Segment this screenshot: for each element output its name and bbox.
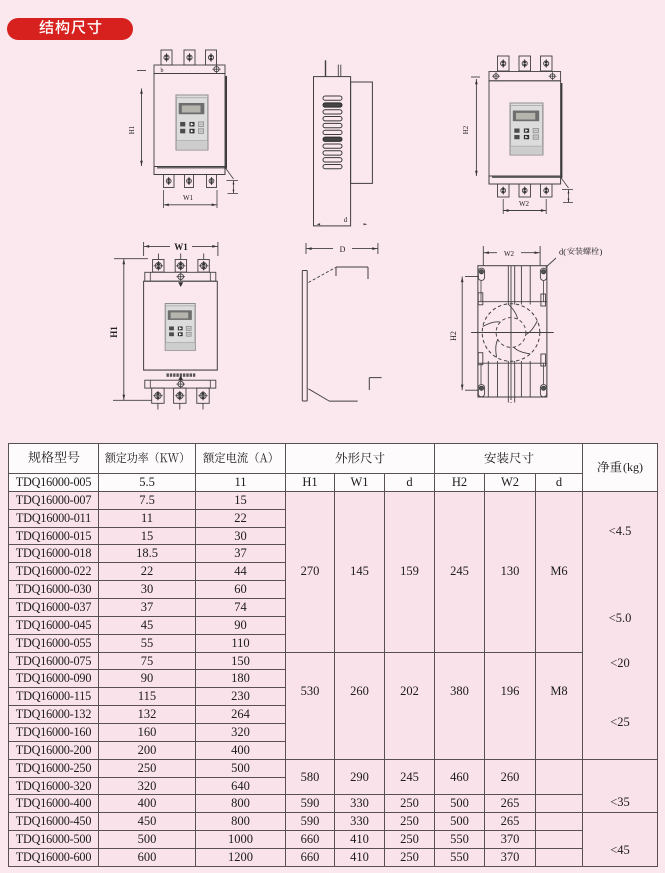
svg-text:W2: W2 — [504, 250, 515, 258]
svg-text:W1: W1 — [183, 194, 194, 202]
svg-text:H2: H2 — [462, 125, 470, 134]
svg-text:): ) — [600, 247, 603, 257]
svg-text:H1: H1 — [109, 326, 119, 338]
svg-text:W2: W2 — [519, 200, 530, 208]
svg-text:d: d — [344, 216, 348, 224]
svg-text:H2: H2 — [449, 331, 458, 341]
svg-text:d(: d( — [559, 247, 566, 257]
svg-text:H1: H1 — [128, 125, 136, 134]
svg-text:W1: W1 — [174, 242, 188, 252]
svg-text:D: D — [340, 245, 346, 254]
